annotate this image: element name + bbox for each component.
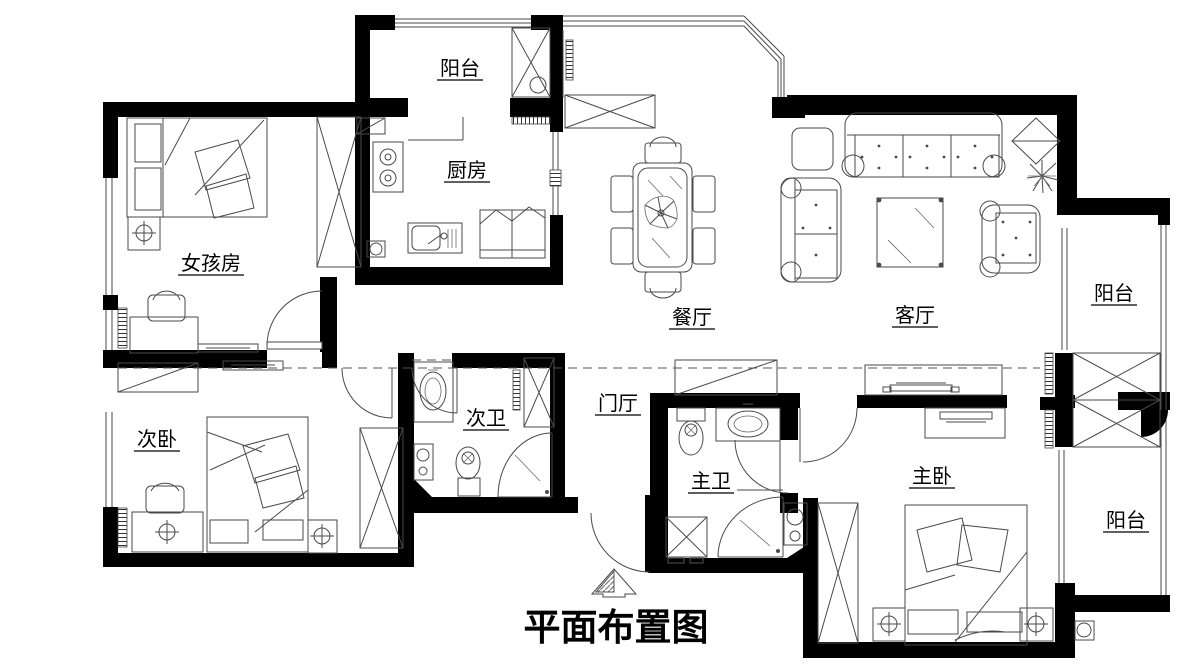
- room-label-kitchen: 厨房: [447, 159, 487, 182]
- walls: [103, 15, 1170, 658]
- top-balcony-items: [512, 28, 550, 97]
- entry-arrow: [592, 569, 636, 597]
- floor-plan: 阳台 厨房 女孩房 餐厅 客厅 阳台 次卧 次卫 门厅 主卫 主卧 阳台 平面布…: [0, 0, 1200, 670]
- kitchen-furniture: [357, 117, 545, 258]
- room-label-girls-room: 女孩房: [181, 252, 241, 275]
- room-label-master-bedroom: 主卧: [912, 465, 952, 488]
- dining-furniture: [565, 95, 715, 298]
- room-label-balcony-right: 阳台: [1094, 282, 1134, 305]
- room-label-second-bedroom: 次卧: [137, 428, 177, 451]
- room-label-master-bath: 主卫: [691, 470, 731, 493]
- living-room-furniture: [781, 113, 1060, 395]
- room-label-dining: 餐厅: [672, 306, 712, 329]
- plan-title: 平面布置图: [524, 607, 709, 648]
- room-label-balcony-top: 阳台: [440, 57, 480, 80]
- room-label-living: 客厅: [895, 304, 935, 327]
- plant: [1027, 160, 1058, 193]
- room-label-foyer: 门厅: [598, 392, 638, 415]
- room-label-balcony-bottom: 阳台: [1106, 509, 1146, 532]
- second-bedroom-furniture: [118, 361, 403, 553]
- floor-plan-canvas: 阳台 厨房 女孩房 餐厅 客厅 阳台 次卧 次卫 门厅 主卫 主卧 阳台 平面布…: [0, 0, 1200, 670]
- room-label-second-bath: 次卫: [466, 407, 506, 430]
